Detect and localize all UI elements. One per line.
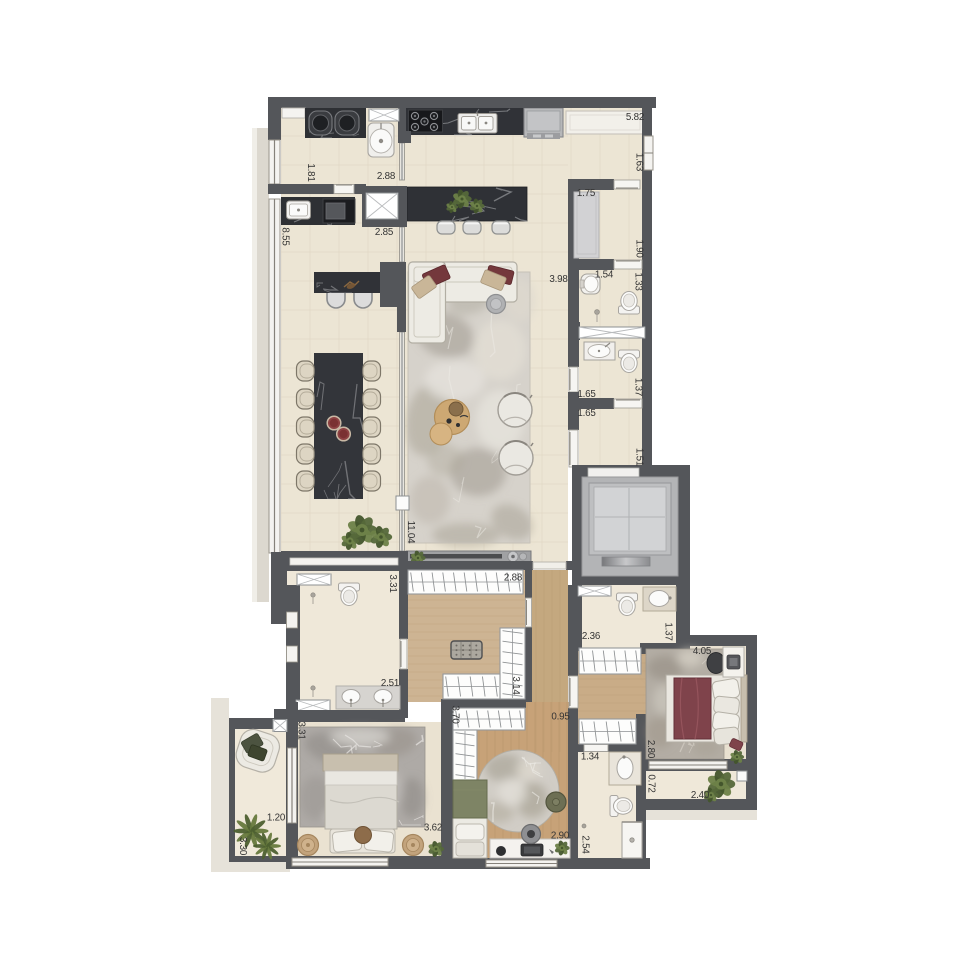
svg-text:1.33: 1.33 [633,272,644,291]
svg-text:1.37: 1.37 [663,622,674,640]
svg-text:2.90: 2.90 [551,830,570,841]
svg-text:2.54: 2.54 [580,835,591,854]
svg-text:1.65: 1.65 [577,408,596,419]
svg-text:2.36: 2.36 [582,631,601,642]
svg-text:11.04: 11.04 [405,521,416,545]
svg-text:1.34: 1.34 [581,751,600,762]
svg-text:4.05: 4.05 [693,646,712,657]
svg-text:1.54: 1.54 [595,269,614,280]
svg-text:1.51: 1.51 [634,448,645,466]
svg-text:3.14: 3.14 [510,676,521,695]
svg-text:1.81: 1.81 [305,163,316,181]
svg-text:2.51: 2.51 [381,678,399,689]
svg-text:1.65: 1.65 [577,389,596,400]
svg-text:3.62: 3.62 [424,822,442,833]
svg-text:3.31: 3.31 [296,721,307,739]
svg-text:1.20: 1.20 [267,812,286,823]
svg-text:8.55: 8.55 [280,227,291,246]
svg-text:1.37: 1.37 [633,378,644,396]
svg-text:0.95: 0.95 [551,711,570,722]
svg-text:2.80: 2.80 [645,740,656,759]
svg-text:3.31: 3.31 [387,574,398,592]
svg-text:1.75: 1.75 [577,188,596,199]
svg-text:3.30: 3.30 [237,837,248,856]
svg-text:1.90: 1.90 [634,239,645,258]
svg-text:3.70: 3.70 [450,705,461,724]
svg-text:2.88: 2.88 [377,171,396,182]
svg-text:5.82: 5.82 [626,112,644,123]
svg-text:2.88: 2.88 [504,572,523,583]
svg-text:0.72: 0.72 [646,774,657,792]
svg-text:3.98: 3.98 [549,274,568,285]
svg-text:2.40: 2.40 [691,790,710,801]
svg-text:2.85: 2.85 [375,227,394,238]
svg-text:1.63: 1.63 [634,153,645,172]
